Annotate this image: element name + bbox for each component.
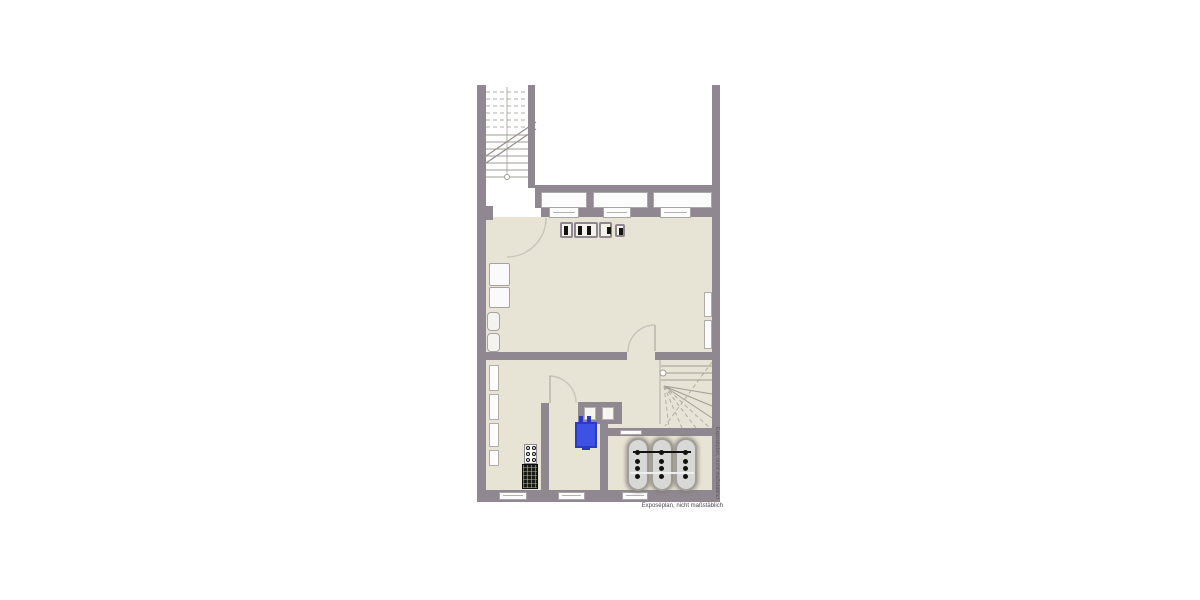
tank-fitting bbox=[635, 459, 640, 464]
meter-box-3 bbox=[599, 222, 612, 238]
tank-fitting bbox=[635, 450, 640, 455]
cupboard-2 bbox=[489, 287, 510, 308]
meter-box-4 bbox=[615, 224, 625, 237]
meter-box-1 bbox=[560, 222, 573, 238]
radiator-left-1 bbox=[489, 365, 499, 391]
window-bottom-3 bbox=[622, 492, 648, 500]
tank-fitting bbox=[683, 459, 688, 464]
hob-ring bbox=[526, 452, 530, 456]
boiler-blue bbox=[575, 422, 597, 448]
disclaimer-text: Exposéplan, nicht maßstäblich bbox=[573, 503, 723, 510]
hob-ring bbox=[532, 458, 536, 462]
tank-fitting bbox=[659, 466, 664, 471]
tank-room-wall bbox=[600, 428, 712, 436]
meter-glyph bbox=[587, 226, 591, 235]
meter-glyph bbox=[578, 226, 582, 235]
floorplan-page: Exposéplan, nicht maßstäblich Exposéplan… bbox=[0, 0, 1200, 600]
tank-room-wall-opening bbox=[620, 430, 642, 435]
radiator-right-2 bbox=[704, 320, 712, 349]
chimney-flue-2 bbox=[602, 407, 614, 420]
meter-box-2 bbox=[574, 222, 598, 238]
stair-wall bbox=[528, 85, 535, 188]
hob-ring bbox=[532, 446, 536, 450]
tank-fitting bbox=[635, 474, 640, 479]
oil-tank-3 bbox=[675, 438, 697, 491]
oil-tank-2 bbox=[651, 438, 673, 491]
tank-fitting bbox=[683, 466, 688, 471]
hob-ring bbox=[532, 452, 536, 456]
lightwell-2 bbox=[593, 192, 648, 208]
watermark-vertical: Exposéplan, nicht maßstäblich bbox=[713, 427, 720, 499]
lightwell-1 bbox=[541, 192, 587, 208]
tank-fitting bbox=[659, 450, 664, 455]
window-top-1 bbox=[549, 207, 579, 218]
radiator-left-2 bbox=[489, 394, 499, 420]
mid-wall-right bbox=[655, 352, 712, 360]
mid-wall-left bbox=[477, 352, 627, 360]
tank-fitting bbox=[683, 474, 688, 479]
stove-hob bbox=[524, 444, 537, 464]
shelf-2 bbox=[487, 333, 500, 352]
radiator-left-3 bbox=[489, 423, 499, 447]
window-top-2 bbox=[603, 207, 631, 218]
radiator-left-4 bbox=[489, 450, 499, 466]
partition-wall-a bbox=[541, 403, 549, 490]
hob-ring bbox=[526, 446, 530, 450]
shelf-1 bbox=[487, 312, 500, 331]
window-bottom-2 bbox=[558, 492, 585, 500]
left-wall bbox=[477, 85, 486, 502]
lightwell-3 bbox=[653, 192, 712, 208]
meter-glyph bbox=[564, 226, 568, 235]
dark-appliance bbox=[522, 464, 538, 489]
doorpost-stair bbox=[477, 206, 493, 220]
radiator-right-1 bbox=[704, 292, 712, 317]
window-top-3 bbox=[660, 207, 691, 218]
cupboard-1 bbox=[489, 263, 510, 286]
tank-fitting bbox=[659, 474, 664, 479]
tank-fitting bbox=[683, 450, 688, 455]
tank-fitting bbox=[635, 466, 640, 471]
oil-tank-1 bbox=[627, 438, 649, 491]
meter-glyph bbox=[619, 228, 623, 235]
meter-glyph bbox=[607, 227, 611, 234]
hob-ring bbox=[526, 458, 530, 462]
tank-fitting bbox=[659, 459, 664, 464]
window-bottom-1 bbox=[499, 492, 527, 500]
top-wall bbox=[535, 185, 712, 192]
